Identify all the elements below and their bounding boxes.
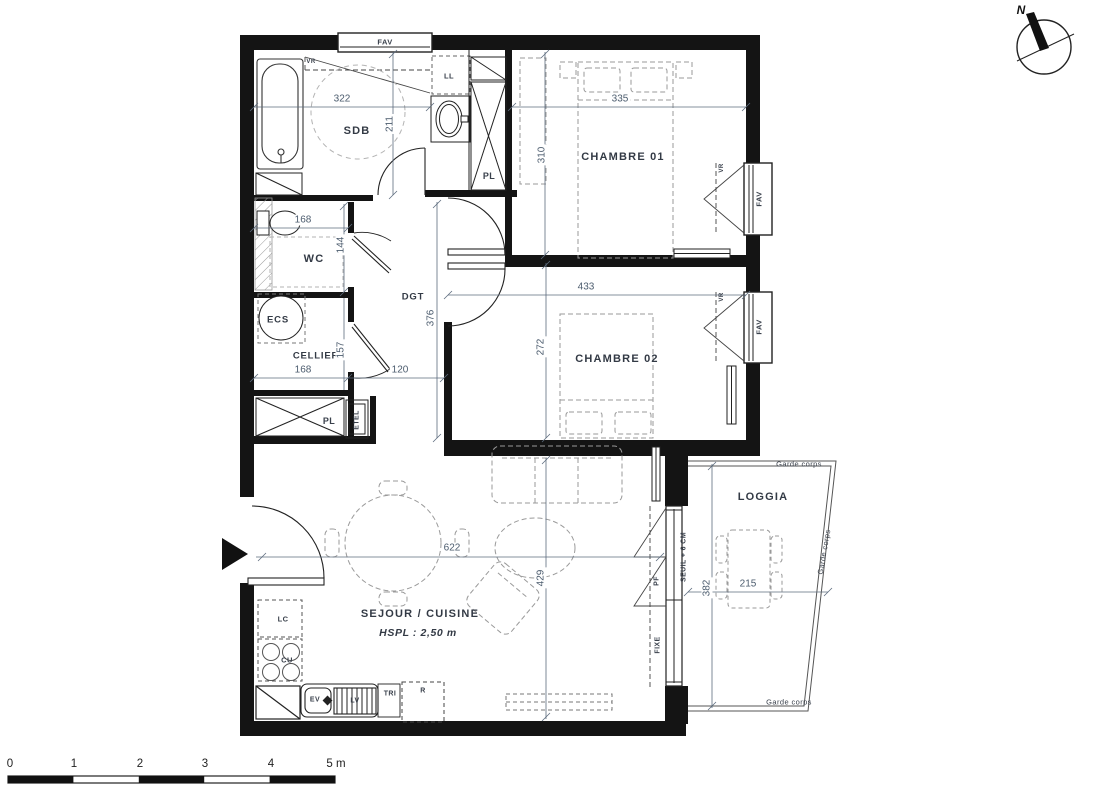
scale-tick-4: 4 — [268, 758, 274, 770]
threshold-label-seuil: SEUIL + 6 CM — [681, 532, 688, 582]
room-label-loggia: LOGGIA — [738, 491, 789, 503]
corner-closet — [256, 686, 300, 719]
railing-label-bottom: Garde corps — [766, 698, 812, 707]
kitchen-label-cu: CU — [281, 656, 293, 665]
shutter-label-vr-ch1: VR — [719, 163, 725, 172]
dim-sejour-height: 429 — [536, 568, 547, 589]
closet-label-pl-top: PL — [483, 171, 495, 181]
vanity-box — [256, 173, 302, 195]
window-label-pf: PF — [654, 576, 661, 586]
dim-wc-width: 168 — [293, 215, 314, 226]
dishwasher-label-lv: LV — [350, 698, 359, 705]
closet-pl-top — [469, 50, 506, 190]
shutter-label-vr-top: VR — [306, 59, 315, 65]
dim-loggia-height: 382 — [702, 578, 713, 599]
shutter-label-vr-ch2: VR — [719, 292, 725, 301]
etel-label: ETEL — [354, 410, 361, 430]
dim-chambre1-height: 310 — [537, 145, 548, 166]
dim-chambre2-width: 433 — [576, 282, 597, 293]
room-label-dgt: DGT — [402, 292, 424, 303]
room-label-cellier: CELLIER — [293, 351, 339, 362]
room-label-chambre1: CHAMBRE 01 — [581, 151, 665, 163]
dim-sdb-width: 322 — [332, 94, 353, 105]
radiator-sejour-east — [652, 447, 660, 501]
window-label-fav-ch2: FAV — [755, 319, 764, 334]
dim-sejour-width: 622 — [442, 543, 463, 554]
window-label-fav-top: FAV — [377, 38, 392, 47]
scale-tick-1: 1 — [71, 758, 77, 770]
floor-plan-drawing — [0, 0, 1097, 800]
closet-label-pl-bottom: PL — [323, 416, 335, 426]
compass-north-label: N — [1017, 3, 1026, 17]
room-label-ecs: ECS — [267, 315, 289, 326]
entry-arrow — [222, 538, 248, 570]
room-label-chambre2: CHAMBRE 02 — [575, 353, 659, 365]
dim-dgt-width: 120 — [390, 365, 411, 376]
clearance-circle — [311, 65, 405, 159]
scale-tick-2: 2 — [137, 758, 143, 770]
scale-tick-3: 3 — [202, 758, 208, 770]
radiator-chambre1 — [674, 249, 730, 258]
tri-label: TRI — [384, 691, 396, 698]
scale-bar — [8, 776, 335, 783]
washer-label-ll: LL — [444, 72, 454, 81]
sink-label-ev: EV — [310, 697, 320, 704]
washbasin — [431, 96, 470, 142]
dim-chambre2-height: 272 — [536, 337, 547, 358]
compass — [1017, 12, 1074, 74]
fridge-label-r: R — [420, 688, 425, 695]
bed-chambre2 — [560, 314, 653, 438]
dim-cellier-width: 168 — [293, 365, 314, 376]
dim-loggia-width: 215 — [738, 579, 759, 590]
dim-sdb-height: 211 — [385, 114, 396, 134]
scale-tick-0: 0 — [7, 758, 13, 770]
window-label-fixe: FIXE — [655, 636, 662, 653]
armchair — [464, 559, 543, 638]
ceiling-height-note: HSPL : 2,50 m — [379, 627, 457, 639]
kitchen-label-lc: LC — [278, 615, 289, 624]
bathtub — [257, 59, 303, 169]
room-label-sdb: SDB — [344, 125, 371, 137]
radiator-chambre2 — [727, 366, 736, 424]
floor-plan-page: SDB WC ECS CELLIER DGT CHAMBRE 01 CHAMBR… — [0, 0, 1097, 800]
loggia-table-set — [716, 530, 782, 608]
dim-wc-height: 144 — [336, 235, 347, 256]
dim-cellier-height: 157 — [336, 340, 347, 361]
radiator-sejour-south — [506, 694, 612, 710]
railing-label-top: Garde corps — [776, 460, 822, 469]
kitchen-units — [258, 600, 302, 681]
dim-chambre1-width: 335 — [610, 94, 631, 105]
window-label-fav-ch1: FAV — [755, 191, 764, 206]
room-label-wc: WC — [304, 253, 325, 265]
scale-tick-5m: 5 m — [326, 758, 345, 770]
room-label-sejour: SEJOUR / CUISINE — [361, 608, 479, 620]
dim-dgt-length: 376 — [426, 308, 437, 329]
